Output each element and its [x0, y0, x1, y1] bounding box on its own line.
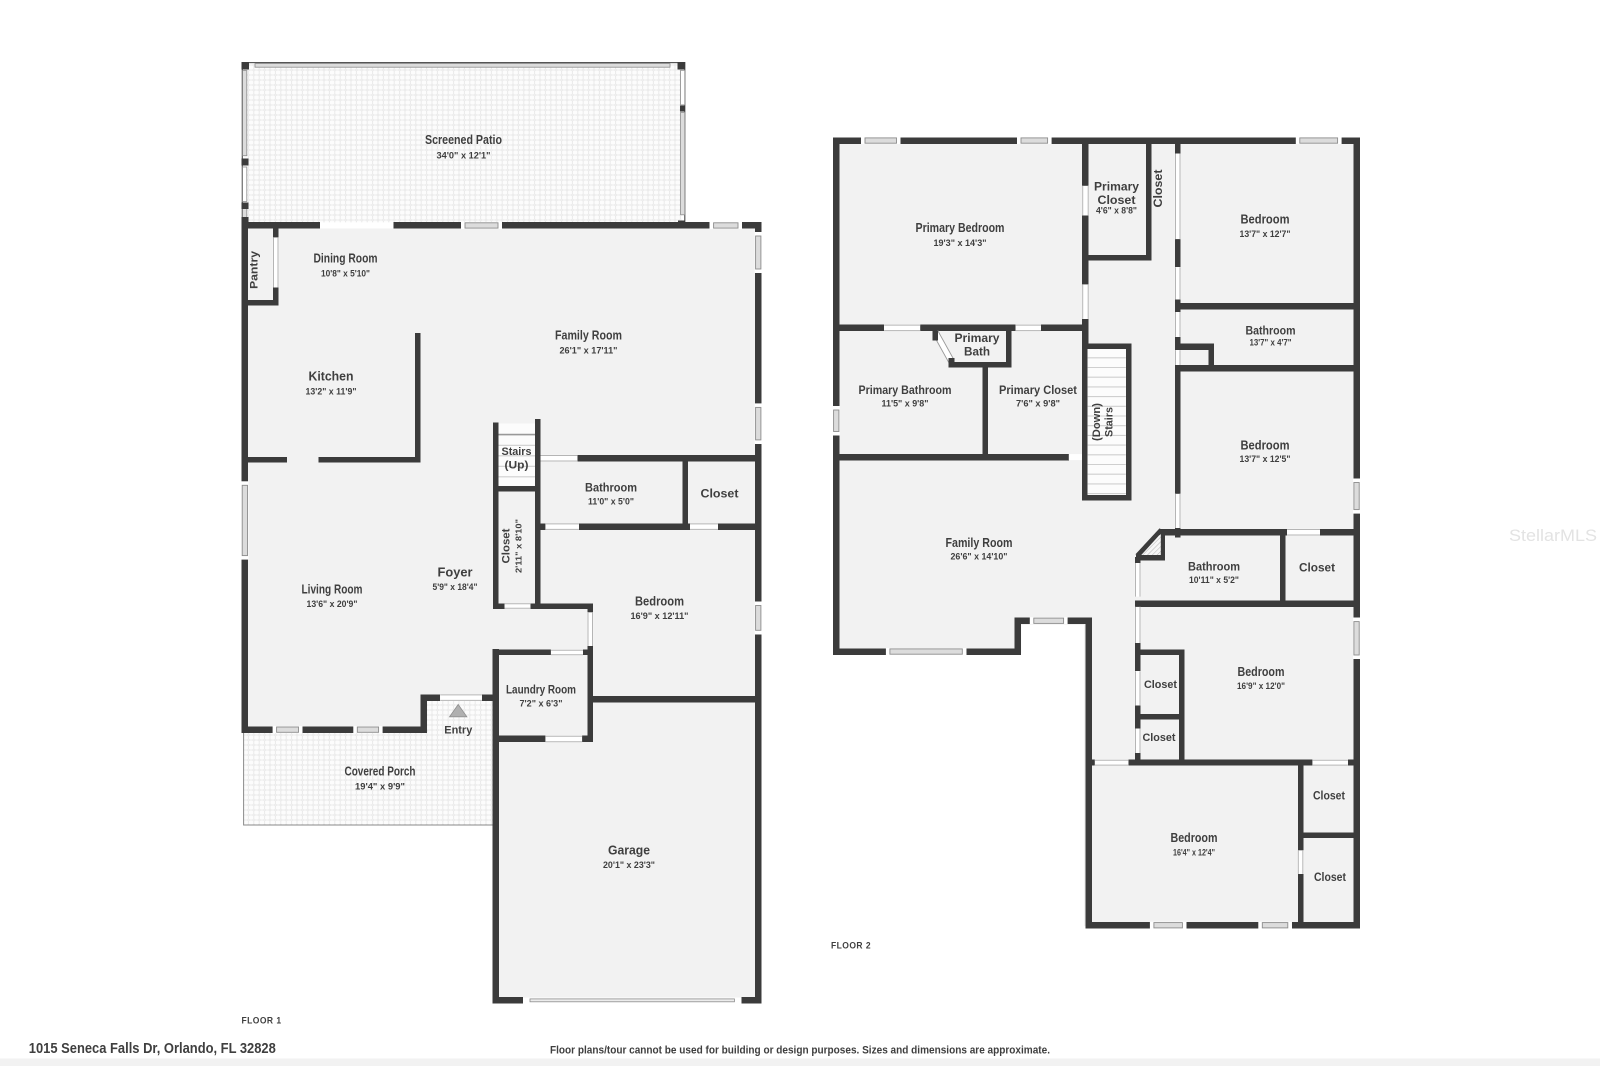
svg-text:Primary: Primary	[1094, 182, 1140, 194]
svg-text:Bedroom: Bedroom	[1238, 665, 1285, 679]
svg-text:11'5" x 9'8": 11'5" x 9'8"	[882, 399, 929, 410]
svg-text:Closet: Closet	[1144, 679, 1177, 691]
svg-text:13'7" x 4'7": 13'7" x 4'7"	[1250, 338, 1292, 349]
svg-text:Closet: Closet	[501, 528, 513, 563]
svg-text:5'9" x 18'4": 5'9" x 18'4"	[433, 582, 478, 593]
svg-text:10'8" x 5'10": 10'8" x 5'10"	[321, 269, 370, 280]
svg-text:Garage: Garage	[608, 844, 650, 858]
svg-text:13'7" x 12'5": 13'7" x 12'5"	[1240, 454, 1291, 465]
svg-text:13'7" x 12'7": 13'7" x 12'7"	[1240, 229, 1291, 240]
svg-text:16'9" x 12'0": 16'9" x 12'0"	[1237, 681, 1285, 692]
svg-text:Family Room: Family Room	[946, 536, 1013, 550]
svg-text:Closet: Closet	[701, 489, 739, 501]
svg-text:Kitchen: Kitchen	[309, 370, 354, 384]
svg-text:16'4" x 12'4": 16'4" x 12'4"	[1173, 848, 1215, 859]
svg-text:19'4" x 9'9": 19'4" x 9'9"	[355, 782, 405, 793]
svg-text:FLOOR 1: FLOOR 1	[242, 1016, 282, 1027]
svg-text:34'0" x 12'1": 34'0" x 12'1"	[437, 151, 491, 162]
svg-text:Bedroom: Bedroom	[1241, 439, 1290, 453]
svg-text:7'2" x 6'3": 7'2" x 6'3"	[520, 699, 563, 710]
svg-text:Living Room: Living Room	[302, 583, 363, 597]
svg-text:Primary: Primary	[955, 333, 1001, 345]
svg-text:Floor plans/tour cannot be use: Floor plans/tour cannot be used for buil…	[550, 1045, 1050, 1057]
svg-text:Primary Bedroom: Primary Bedroom	[916, 221, 1005, 235]
svg-text:2'11" x 8'10": 2'11" x 8'10"	[514, 519, 524, 573]
svg-text:Bathroom: Bathroom	[585, 483, 637, 495]
svg-text:Stairs: Stairs	[502, 446, 532, 458]
svg-text:Closet: Closet	[1143, 732, 1176, 744]
svg-text:20'1" x 23'3": 20'1" x 23'3"	[603, 860, 655, 871]
svg-text:FLOOR 2: FLOOR 2	[831, 941, 871, 952]
svg-text:7'6" x 9'8": 7'6" x 9'8"	[1016, 399, 1060, 410]
svg-text:4'6" x 8'8": 4'6" x 8'8"	[1096, 206, 1137, 216]
svg-text:13'2" x 11'9": 13'2" x 11'9"	[306, 387, 357, 398]
svg-text:Family Room: Family Room	[555, 329, 622, 343]
svg-text:Closet: Closet	[1313, 791, 1345, 803]
svg-text:16'9" x 12'11": 16'9" x 12'11"	[631, 611, 689, 622]
svg-text:Primary Bathroom: Primary Bathroom	[859, 385, 952, 397]
svg-text:10'11" x 5'2": 10'11" x 5'2"	[1189, 575, 1239, 586]
svg-text:Closet: Closet	[1299, 563, 1335, 575]
svg-text:(Down): (Down)	[1091, 403, 1103, 441]
svg-text:Screened Patio: Screened Patio	[425, 133, 502, 147]
svg-text:Laundry Room: Laundry Room	[506, 685, 576, 697]
svg-text:Primary Closet: Primary Closet	[999, 385, 1077, 397]
svg-text:26'6" x 14'10": 26'6" x 14'10"	[951, 552, 1008, 563]
svg-text:Bathroom: Bathroom	[1246, 326, 1296, 338]
svg-text:Foyer: Foyer	[438, 566, 473, 580]
svg-text:13'6" x 20'9": 13'6" x 20'9"	[307, 599, 358, 610]
svg-text:Closet: Closet	[1314, 872, 1346, 884]
svg-text:11'0" x 5'0": 11'0" x 5'0"	[588, 497, 634, 508]
svg-text:Bedroom: Bedroom	[635, 595, 684, 609]
svg-text:Closet: Closet	[1153, 169, 1165, 207]
svg-text:26'1" x 17'11": 26'1" x 17'11"	[560, 346, 618, 357]
svg-text:Dining Room: Dining Room	[314, 252, 378, 266]
svg-text:(Up): (Up)	[505, 460, 529, 472]
svg-text:19'3" x 14'3": 19'3" x 14'3"	[934, 238, 987, 249]
svg-text:1015 Seneca Falls Dr, Orlando,: 1015 Seneca Falls Dr, Orlando, FL 32828	[29, 1041, 276, 1057]
svg-text:Bedroom: Bedroom	[1171, 831, 1218, 845]
svg-text:Covered Porch: Covered Porch	[345, 765, 416, 779]
svg-text:Bath: Bath	[964, 347, 990, 359]
svg-text:Bedroom: Bedroom	[1241, 213, 1290, 227]
svg-text:Bathroom: Bathroom	[1188, 562, 1240, 574]
svg-text:Entry: Entry	[444, 725, 473, 737]
svg-text:Pantry: Pantry	[249, 250, 261, 289]
svg-text:Stairs: Stairs	[1104, 407, 1116, 437]
svg-text:StellarMLS: StellarMLS	[1509, 526, 1597, 545]
